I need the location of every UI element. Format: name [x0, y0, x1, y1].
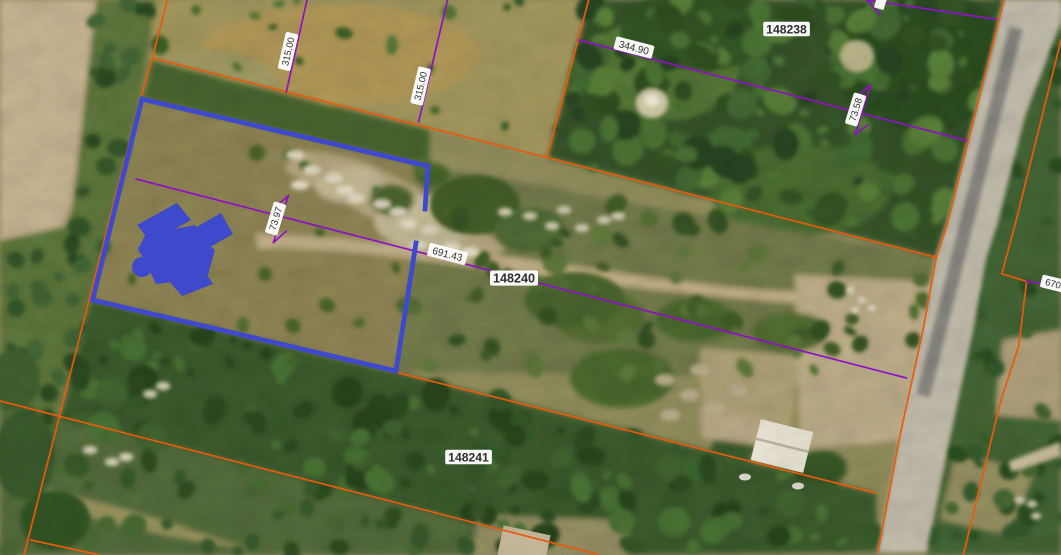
svg-text:148241: 148241 — [448, 450, 489, 464]
svg-text:148240: 148240 — [493, 272, 535, 286]
svg-text:148238: 148238 — [766, 22, 807, 36]
